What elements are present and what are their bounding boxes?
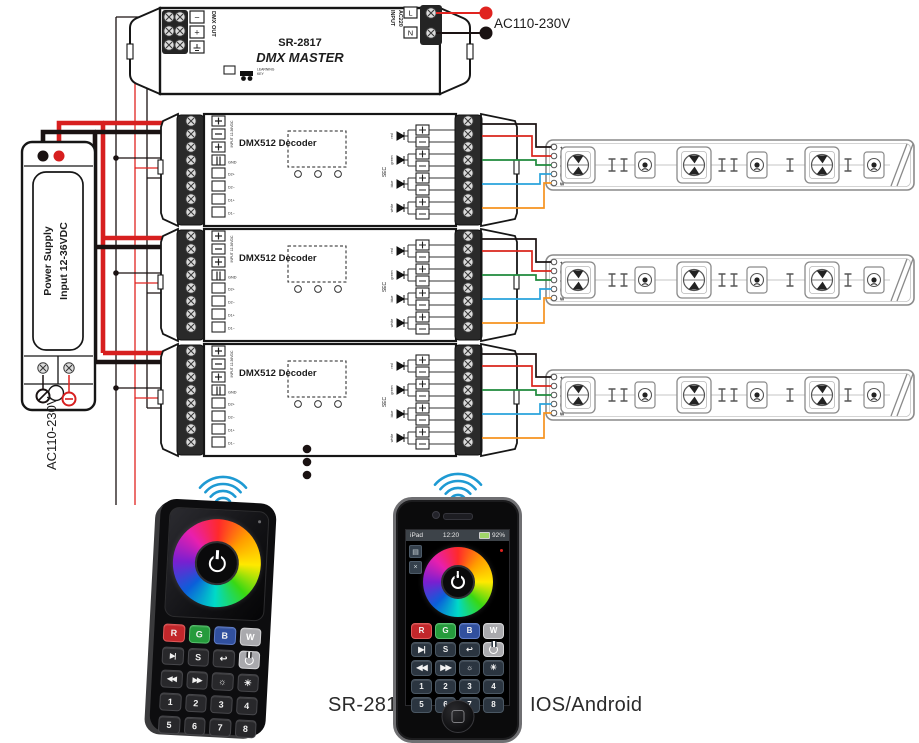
- carrier-label: iPad: [410, 532, 423, 539]
- menu-icon[interactable]: ▤: [409, 545, 422, 558]
- key-1[interactable]: 1: [159, 692, 181, 711]
- psu-line1: Power Supply: [42, 226, 54, 296]
- master-name: DMX MASTER: [256, 50, 344, 65]
- key-power[interactable]: [238, 650, 260, 669]
- dmx-out-label: DMX OUT: [210, 11, 216, 37]
- key-3[interactable]: 3: [459, 679, 480, 695]
- key-☼[interactable]: ☼: [211, 672, 233, 691]
- decoder-row-1: [95, 114, 914, 226]
- key-6[interactable]: 6: [183, 717, 205, 736]
- learning-key-label-2: KEY: [257, 72, 265, 76]
- key-↩[interactable]: ↩: [459, 642, 480, 658]
- dc-minus-terminal: [38, 151, 49, 162]
- master-input-label-1: INPUT: [389, 10, 395, 27]
- remote-touch-screen[interactable]: [164, 507, 270, 622]
- more-decoders-ellipsis: [303, 445, 312, 480]
- neutral-wire-dot: [480, 27, 493, 40]
- power-button[interactable]: [194, 540, 240, 586]
- status-bar: iPad 12:20 92%: [406, 530, 509, 541]
- key-power[interactable]: [483, 642, 504, 658]
- dmx-master: − + DMX OUT LEARNING KEY SR-2817 DMX MAS…: [127, 5, 473, 94]
- key-◀◀[interactable]: ◀◀: [411, 660, 432, 676]
- phone-ios-android: iPad 12:20 92% ▤ × RGBW▶|S↩◀◀▶▶☼☀1234567…: [393, 497, 522, 743]
- key-5[interactable]: 5: [158, 715, 180, 734]
- color-wheel[interactable]: [171, 517, 263, 609]
- key-W[interactable]: W: [239, 627, 261, 646]
- decoder-row-2: [95, 229, 914, 341]
- key-S[interactable]: S: [435, 642, 456, 658]
- key-S[interactable]: S: [187, 648, 209, 667]
- neutral-terminal: N: [408, 29, 413, 38]
- power-icon: [489, 645, 498, 654]
- key-7[interactable]: 7: [209, 718, 231, 737]
- power-supply: Power Supply Input 12-36VDC AC110-230V: [22, 142, 95, 470]
- key-1[interactable]: 1: [411, 679, 432, 695]
- key-G[interactable]: G: [435, 623, 456, 639]
- key-3[interactable]: 3: [210, 695, 232, 714]
- home-button[interactable]: [441, 700, 474, 733]
- key-8[interactable]: 8: [483, 697, 504, 713]
- key-G[interactable]: G: [188, 625, 210, 644]
- key-↩[interactable]: ↩: [212, 649, 234, 668]
- close-icon[interactable]: ×: [409, 561, 422, 574]
- decoder-row-3: [95, 344, 914, 456]
- dmx-out-minus: −: [194, 13, 199, 23]
- key-▶|[interactable]: ▶|: [161, 646, 183, 665]
- key-4[interactable]: 4: [235, 696, 257, 715]
- remote-keypad: RGBW▶|S↩◀◀▶▶☼☀12345678: [158, 623, 262, 738]
- key-8[interactable]: 8: [234, 719, 256, 738]
- record-dot: [500, 549, 503, 552]
- battery-percent: 92%: [492, 532, 505, 539]
- key-☼[interactable]: ☼: [459, 660, 480, 676]
- key-☀[interactable]: ☀: [237, 673, 259, 692]
- dc-plus-terminal: [54, 151, 65, 162]
- key-▶▶[interactable]: ▶▶: [435, 660, 456, 676]
- key-▶▶[interactable]: ▶▶: [186, 671, 208, 690]
- key-◀◀[interactable]: ◀◀: [160, 669, 182, 688]
- earpiece: [443, 513, 473, 520]
- dmx-out-plus: +: [194, 28, 199, 38]
- key-B[interactable]: B: [214, 626, 236, 645]
- psu-line2: Input 12-36VDC: [58, 222, 70, 300]
- home-square-icon: [451, 710, 464, 723]
- psu-ac-label: AC110-230V: [44, 396, 59, 470]
- master-input-label-2: AC220: [397, 10, 403, 27]
- master-model: SR-2817: [278, 37, 321, 49]
- battery-icon: [479, 532, 490, 539]
- power-icon: [244, 655, 253, 664]
- battery-indicator: 92%: [479, 532, 505, 539]
- key-B[interactable]: B: [459, 623, 480, 639]
- key-2[interactable]: 2: [185, 694, 207, 713]
- power-button[interactable]: [441, 565, 475, 599]
- app-area: ▤ × RGBW▶|S↩◀◀▶▶☼☀12345678: [406, 541, 509, 705]
- key-W[interactable]: W: [483, 623, 504, 639]
- power-icon: [208, 554, 226, 572]
- power-icon: [451, 575, 465, 589]
- wifi-arcs-icon: [435, 474, 481, 498]
- key-R[interactable]: R: [411, 623, 432, 639]
- phone-platform-label: IOS/Android: [530, 694, 642, 717]
- wifi-arcs-icon: [200, 477, 246, 501]
- clock-label: 12:20: [443, 532, 459, 539]
- learning-key-button[interactable]: [224, 66, 235, 74]
- key-5[interactable]: 5: [411, 697, 432, 713]
- ac-label-top: AC110-230V: [494, 16, 570, 31]
- wiring-diagram-page: INPUT 12-36VDC GND D2+ D2− D1+ D1− DMX51…: [0, 0, 919, 743]
- key-▶|[interactable]: ▶|: [411, 642, 432, 658]
- key-2[interactable]: 2: [435, 679, 456, 695]
- learning-key-icon: [240, 71, 253, 76]
- key-☀[interactable]: ☀: [483, 660, 504, 676]
- camera-icon: [432, 511, 440, 519]
- live-terminal: L: [408, 9, 412, 18]
- key-R[interactable]: R: [163, 623, 185, 642]
- remote-sr2818: RGBW▶|S↩◀◀▶▶☼☀12345678: [149, 498, 277, 737]
- color-wheel[interactable]: [423, 547, 493, 617]
- phone-screen[interactable]: iPad 12:20 92% ▤ × RGBW▶|S↩◀◀▶▶☼☀1234567…: [405, 529, 510, 706]
- indicator-led: [258, 520, 261, 523]
- live-wire-dot: [480, 7, 493, 20]
- key-4[interactable]: 4: [483, 679, 504, 695]
